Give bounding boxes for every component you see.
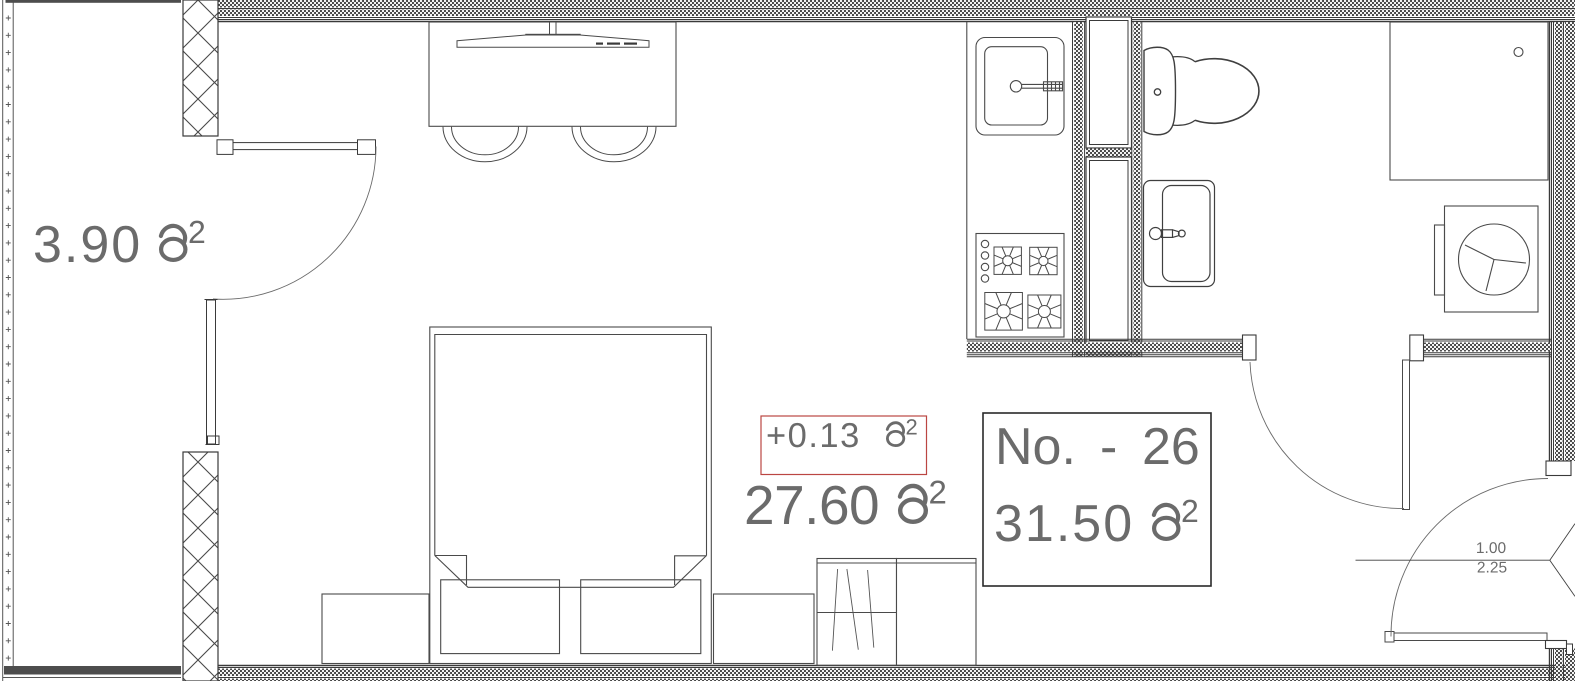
svg-text:2: 2 — [188, 214, 206, 250]
svg-text:2: 2 — [1181, 493, 1199, 529]
svg-text:27.60: 27.60 — [744, 474, 879, 536]
svg-text:2: 2 — [929, 474, 947, 511]
svg-text:31.50: 31.50 — [994, 495, 1134, 553]
svg-text:26: 26 — [1142, 418, 1200, 476]
svg-text:3.90: 3.90 — [33, 216, 142, 274]
svg-text:No.: No. — [995, 418, 1076, 476]
svg-text:2.25: 2.25 — [1477, 560, 1507, 577]
svg-text:-: - — [1100, 418, 1117, 476]
svg-text:2: 2 — [906, 415, 918, 440]
svg-text:1.00: 1.00 — [1476, 540, 1507, 557]
svg-text:+0.13: +0.13 — [766, 417, 861, 455]
